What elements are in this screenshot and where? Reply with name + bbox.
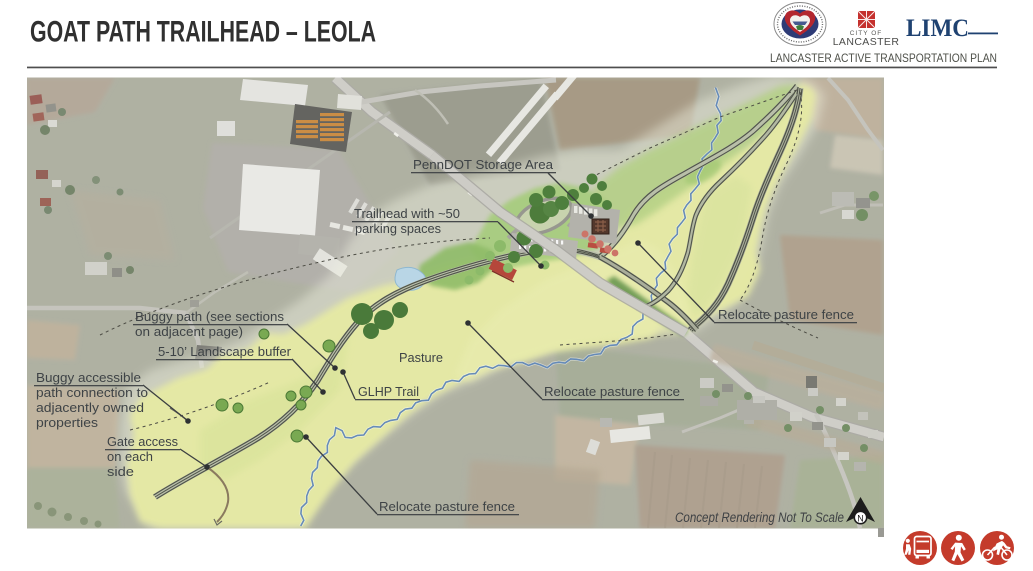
svg-text:GLHP Trail: GLHP Trail — [358, 384, 419, 399]
svg-text:5-10’ Landscape buffer: 5-10’ Landscape buffer — [158, 344, 292, 359]
svg-text:path connection to: path connection to — [36, 385, 148, 400]
svg-text:LANCASTER ACTIVE TRANSPORTATIO: LANCASTER ACTIVE TRANSPORTATION PLAN — [770, 53, 997, 65]
svg-text:PennDOT Storage Area: PennDOT Storage Area — [413, 157, 554, 172]
svg-text:Concept Rendering Not To Scale: Concept Rendering Not To Scale — [675, 510, 844, 525]
svg-text:Buggy accessible: Buggy accessible — [36, 370, 141, 385]
svg-text:Buggy path (see sections: Buggy path (see sections — [135, 309, 285, 324]
svg-text:parking spaces: parking spaces — [355, 221, 441, 236]
svg-text:Gate access: Gate access — [107, 434, 178, 449]
svg-text:Relocate pasture fence: Relocate pasture fence — [718, 307, 854, 322]
svg-text:properties: properties — [36, 415, 99, 430]
svg-text:on each: on each — [107, 449, 153, 464]
svg-text:side: side — [107, 464, 134, 479]
svg-text:on adjacent page): on adjacent page) — [135, 324, 243, 339]
svg-text:LANCASTER: LANCASTER — [833, 36, 900, 48]
svg-text:GOAT PATH TRAILHEAD – LEOLA: GOAT PATH TRAILHEAD – LEOLA — [30, 16, 376, 49]
svg-text:adjacently owned: adjacently owned — [36, 400, 144, 415]
svg-text:N: N — [857, 514, 864, 524]
svg-text:Relocate pasture fence: Relocate pasture fence — [544, 384, 680, 399]
svg-text:Relocate pasture fence: Relocate pasture fence — [379, 499, 515, 514]
svg-text:Trailhead with ~50: Trailhead with ~50 — [354, 206, 460, 221]
svg-text:LIMC: LIMC — [906, 15, 969, 42]
svg-text:Pasture: Pasture — [399, 350, 443, 365]
